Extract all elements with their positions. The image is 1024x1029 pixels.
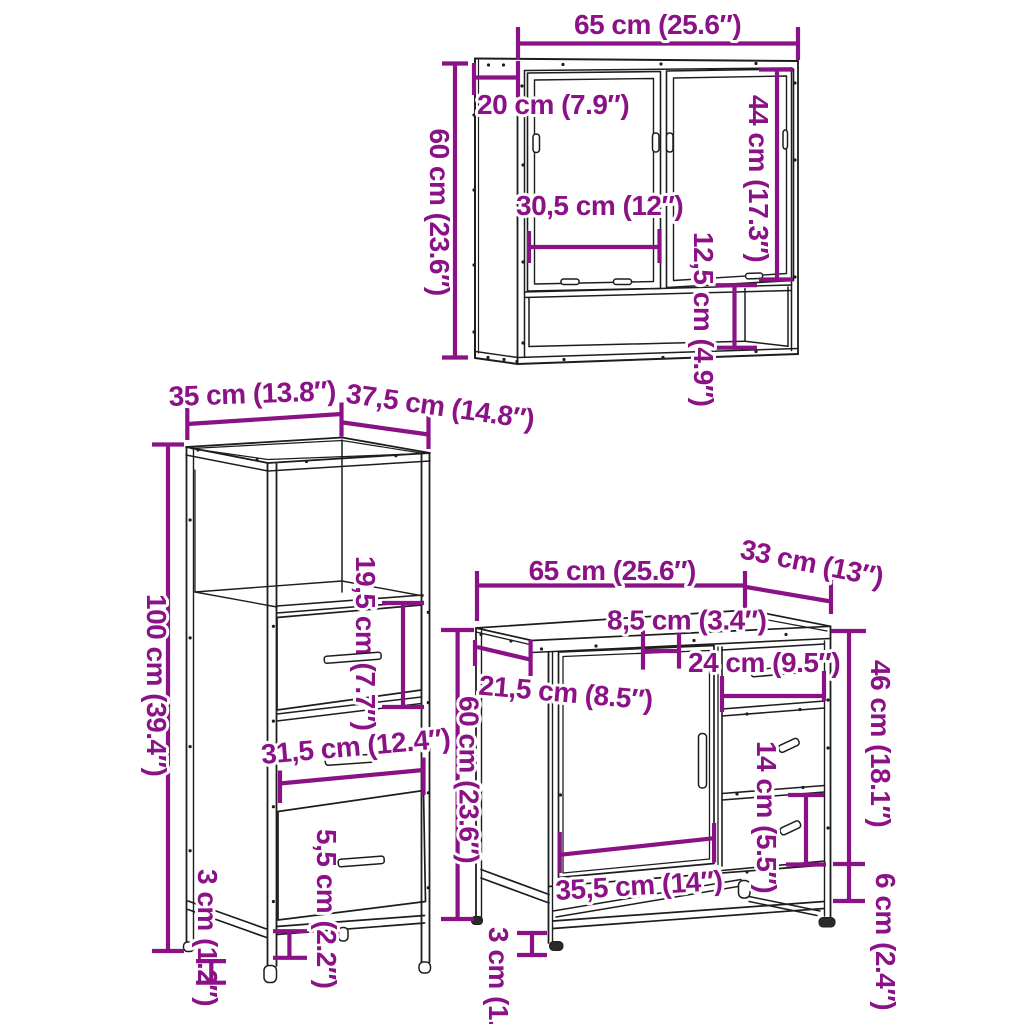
svg-text:3 cm (1.2″): 3 cm (1.2″) [483, 927, 514, 1024]
svg-text:19,5 cm (7.7″): 19,5 cm (7.7″) [350, 556, 381, 731]
svg-text:44 cm (17.3″): 44 cm (17.3″) [743, 95, 774, 262]
svg-text:3 cm (1.2″): 3 cm (1.2″) [192, 869, 223, 1006]
svg-text:20 cm (7.9″): 20 cm (7.9″) [477, 89, 629, 120]
svg-text:6 cm (2.4″): 6 cm (2.4″) [870, 873, 901, 1010]
svg-text:14 cm (5.5″): 14 cm (5.5″) [751, 741, 782, 893]
svg-text:60 cm (23.6″): 60 cm (23.6″) [424, 129, 455, 296]
svg-text:35 cm (13.8″): 35 cm (13.8″) [168, 375, 336, 412]
svg-text:12,5 cm (4.9″): 12,5 cm (4.9″) [688, 232, 719, 407]
svg-text:8,5 cm (3.4″): 8,5 cm (3.4″) [607, 605, 766, 636]
svg-text:24 cm (9.5″): 24 cm (9.5″) [688, 647, 840, 678]
svg-text:100 cm (39.4″): 100 cm (39.4″) [141, 594, 172, 776]
svg-text:46 cm (18.1″): 46 cm (18.1″) [865, 660, 896, 827]
svg-text:65 cm (25.6″): 65 cm (25.6″) [529, 555, 696, 586]
svg-text:30,5 cm (12″): 30,5 cm (12″) [516, 190, 683, 221]
svg-text:65 cm (25.6″): 65 cm (25.6″) [574, 9, 741, 40]
svg-text:60 cm (23.6″): 60 cm (23.6″) [454, 696, 485, 863]
svg-text:5,5 cm (2.2″): 5,5 cm (2.2″) [311, 829, 342, 988]
